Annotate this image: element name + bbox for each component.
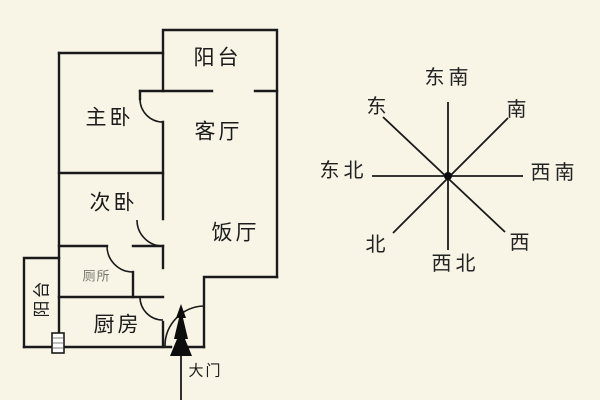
- compass-label-bottom: 西北: [429, 253, 480, 273]
- room-label-master-bedroom: 主卧: [83, 108, 134, 129]
- door-arc-master-bedroom: [140, 99, 163, 122]
- compass-label-upper-left: 东: [364, 96, 391, 116]
- compass-label-lower-right: 西: [507, 232, 534, 252]
- room-label-balcony-top: 阳台: [191, 48, 242, 69]
- door-arc-second-bedroom: [137, 220, 163, 246]
- room-label-kitchen: 厨房: [91, 315, 142, 336]
- room-label-balcony-left: 阳台: [35, 280, 52, 321]
- room-label-main-door: 大门: [185, 364, 222, 379]
- compass-center-dot: [444, 172, 452, 180]
- door-arcs: [107, 99, 204, 346]
- door-arc-kitchen: [140, 297, 163, 320]
- apartment-walls: [24, 30, 277, 347]
- window-hatch: [52, 333, 64, 353]
- compass-label-lower-left: 北: [363, 234, 390, 254]
- door-arc-toilet: [107, 246, 133, 272]
- room-label-second-bedroom: 次卧: [87, 193, 138, 214]
- compass-label-left: 东北: [317, 160, 368, 180]
- compass-rose: [372, 102, 523, 250]
- room-label-dining-room: 饭厅: [209, 223, 260, 244]
- floor-plan-page: 阳台 主卧 客厅 次卧 饭厅 厕所 厨房 阳台 大门 东南 东 南 东北 西南 …: [0, 0, 600, 400]
- room-label-living-room: 客厅: [192, 122, 243, 143]
- entry-arrow-icon: [170, 304, 192, 400]
- compass-label-top: 东南: [422, 67, 473, 87]
- room-label-toilet: 厕所: [79, 271, 110, 284]
- compass-label-upper-right: 南: [504, 99, 531, 119]
- wall-dining-step: [204, 277, 277, 347]
- compass-label-right: 西南: [528, 162, 579, 182]
- compass-line-diagonal-1: [383, 117, 505, 232]
